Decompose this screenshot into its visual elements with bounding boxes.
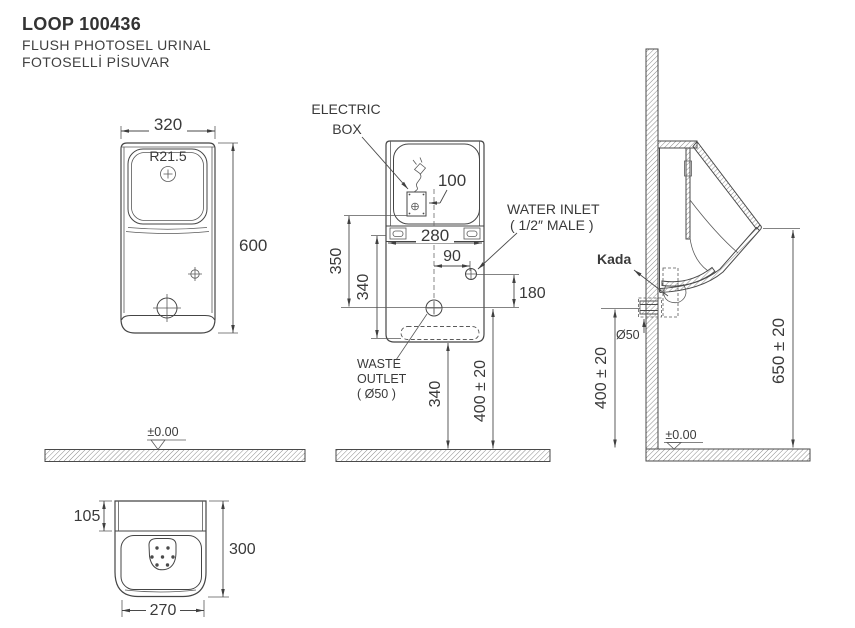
datum-right: ±0.00	[664, 428, 703, 449]
technical-drawing-sheet: LOOP 100436 FLUSH PHOTOSEL URINAL FOTOSE…	[0, 0, 855, 628]
wall-section	[646, 49, 658, 449]
title-block: LOOP 100436 FLUSH PHOTOSEL URINAL FOTOSE…	[22, 14, 211, 70]
datum-left: ±0.00	[147, 425, 186, 450]
product-name-en: FLUSH PHOTOSEL URINAL	[22, 37, 211, 53]
front-inlet-target	[188, 267, 202, 281]
waste-outlet-label-3: ( Ø50 )	[357, 387, 396, 401]
front-width-dim: 320	[154, 115, 182, 134]
floor-right	[646, 449, 810, 461]
plan-bowl-rim	[121, 536, 202, 590]
electric-box	[407, 192, 426, 216]
drain-strainer	[149, 539, 176, 570]
corner-radius-dim: R21.5	[149, 148, 187, 164]
front-height-dim: 600	[239, 236, 267, 255]
floor-to-outlet-dim: 400 ± 20	[593, 347, 610, 409]
floor-to-bottom-dim: 340	[427, 381, 444, 408]
bowl-width-dim: 270	[150, 602, 177, 619]
front-waste-target	[153, 294, 181, 322]
side-back-wall	[686, 148, 690, 239]
electric-box-label-1: ELECTRIC	[311, 101, 380, 117]
trap-label: Kada	[597, 251, 631, 267]
outlet-diameter-label: Ø50	[616, 328, 640, 342]
box-to-waste-dim: 350	[328, 248, 345, 275]
power-plug-icon	[413, 158, 426, 193]
side-view: Kada Ø50 400 ± 20 650 ± 20	[593, 141, 800, 448]
product-code: LOOP 100436	[22, 14, 141, 34]
front-view: R21.5 320 600	[121, 115, 267, 333]
datum-right-label: ±0.00	[665, 428, 696, 442]
datum-left-label: ±0.00	[147, 425, 178, 439]
floor-left	[45, 450, 305, 462]
floor-middle	[336, 450, 550, 462]
product-name-tr: FOTOSELLİ PİSUVAR	[22, 53, 170, 70]
mounting-bracket-right	[464, 228, 480, 239]
mounting-width-dim: 280	[421, 226, 449, 245]
waste-outlet-point	[426, 300, 442, 316]
rail-to-bottom-dim: 340	[355, 274, 372, 301]
electric-box-label-2: BOX	[332, 121, 362, 137]
total-depth-dim: 300	[229, 541, 256, 558]
side-top-mount	[658, 141, 697, 148]
water-inlet-point	[466, 269, 477, 280]
rear-view: 100 ELECTRIC BOX 280 90 WATER INLET ( 1/…	[311, 101, 600, 449]
electric-box-offset-dim: 100	[438, 171, 466, 190]
floor-to-waste-dim: 400 ± 20	[472, 360, 489, 422]
water-inlet-label-1: WATER INLET	[507, 201, 600, 217]
plan-outline	[115, 501, 206, 597]
waste-outlet-label-2: OUTLET	[357, 372, 407, 386]
waste-outlet-label-1: WASTE	[357, 357, 401, 371]
floor-to-rim-dim: 650 ± 20	[769, 318, 788, 384]
inlet-to-waste-dim: 180	[519, 285, 546, 302]
top-depth-dim: 105	[74, 508, 101, 525]
mounting-bracket-left	[390, 228, 406, 239]
urinal-installation-drawing: LOOP 100436 FLUSH PHOTOSEL URINAL FOTOSE…	[0, 0, 855, 628]
rear-tank-panel	[394, 144, 480, 224]
inlet-offset-dim: 90	[443, 248, 461, 265]
rear-base-hidden-line	[401, 327, 479, 340]
plan-view: 105 300 270	[74, 501, 256, 619]
water-inlet-label-2: ( 1/2″ MALE )	[510, 217, 594, 233]
